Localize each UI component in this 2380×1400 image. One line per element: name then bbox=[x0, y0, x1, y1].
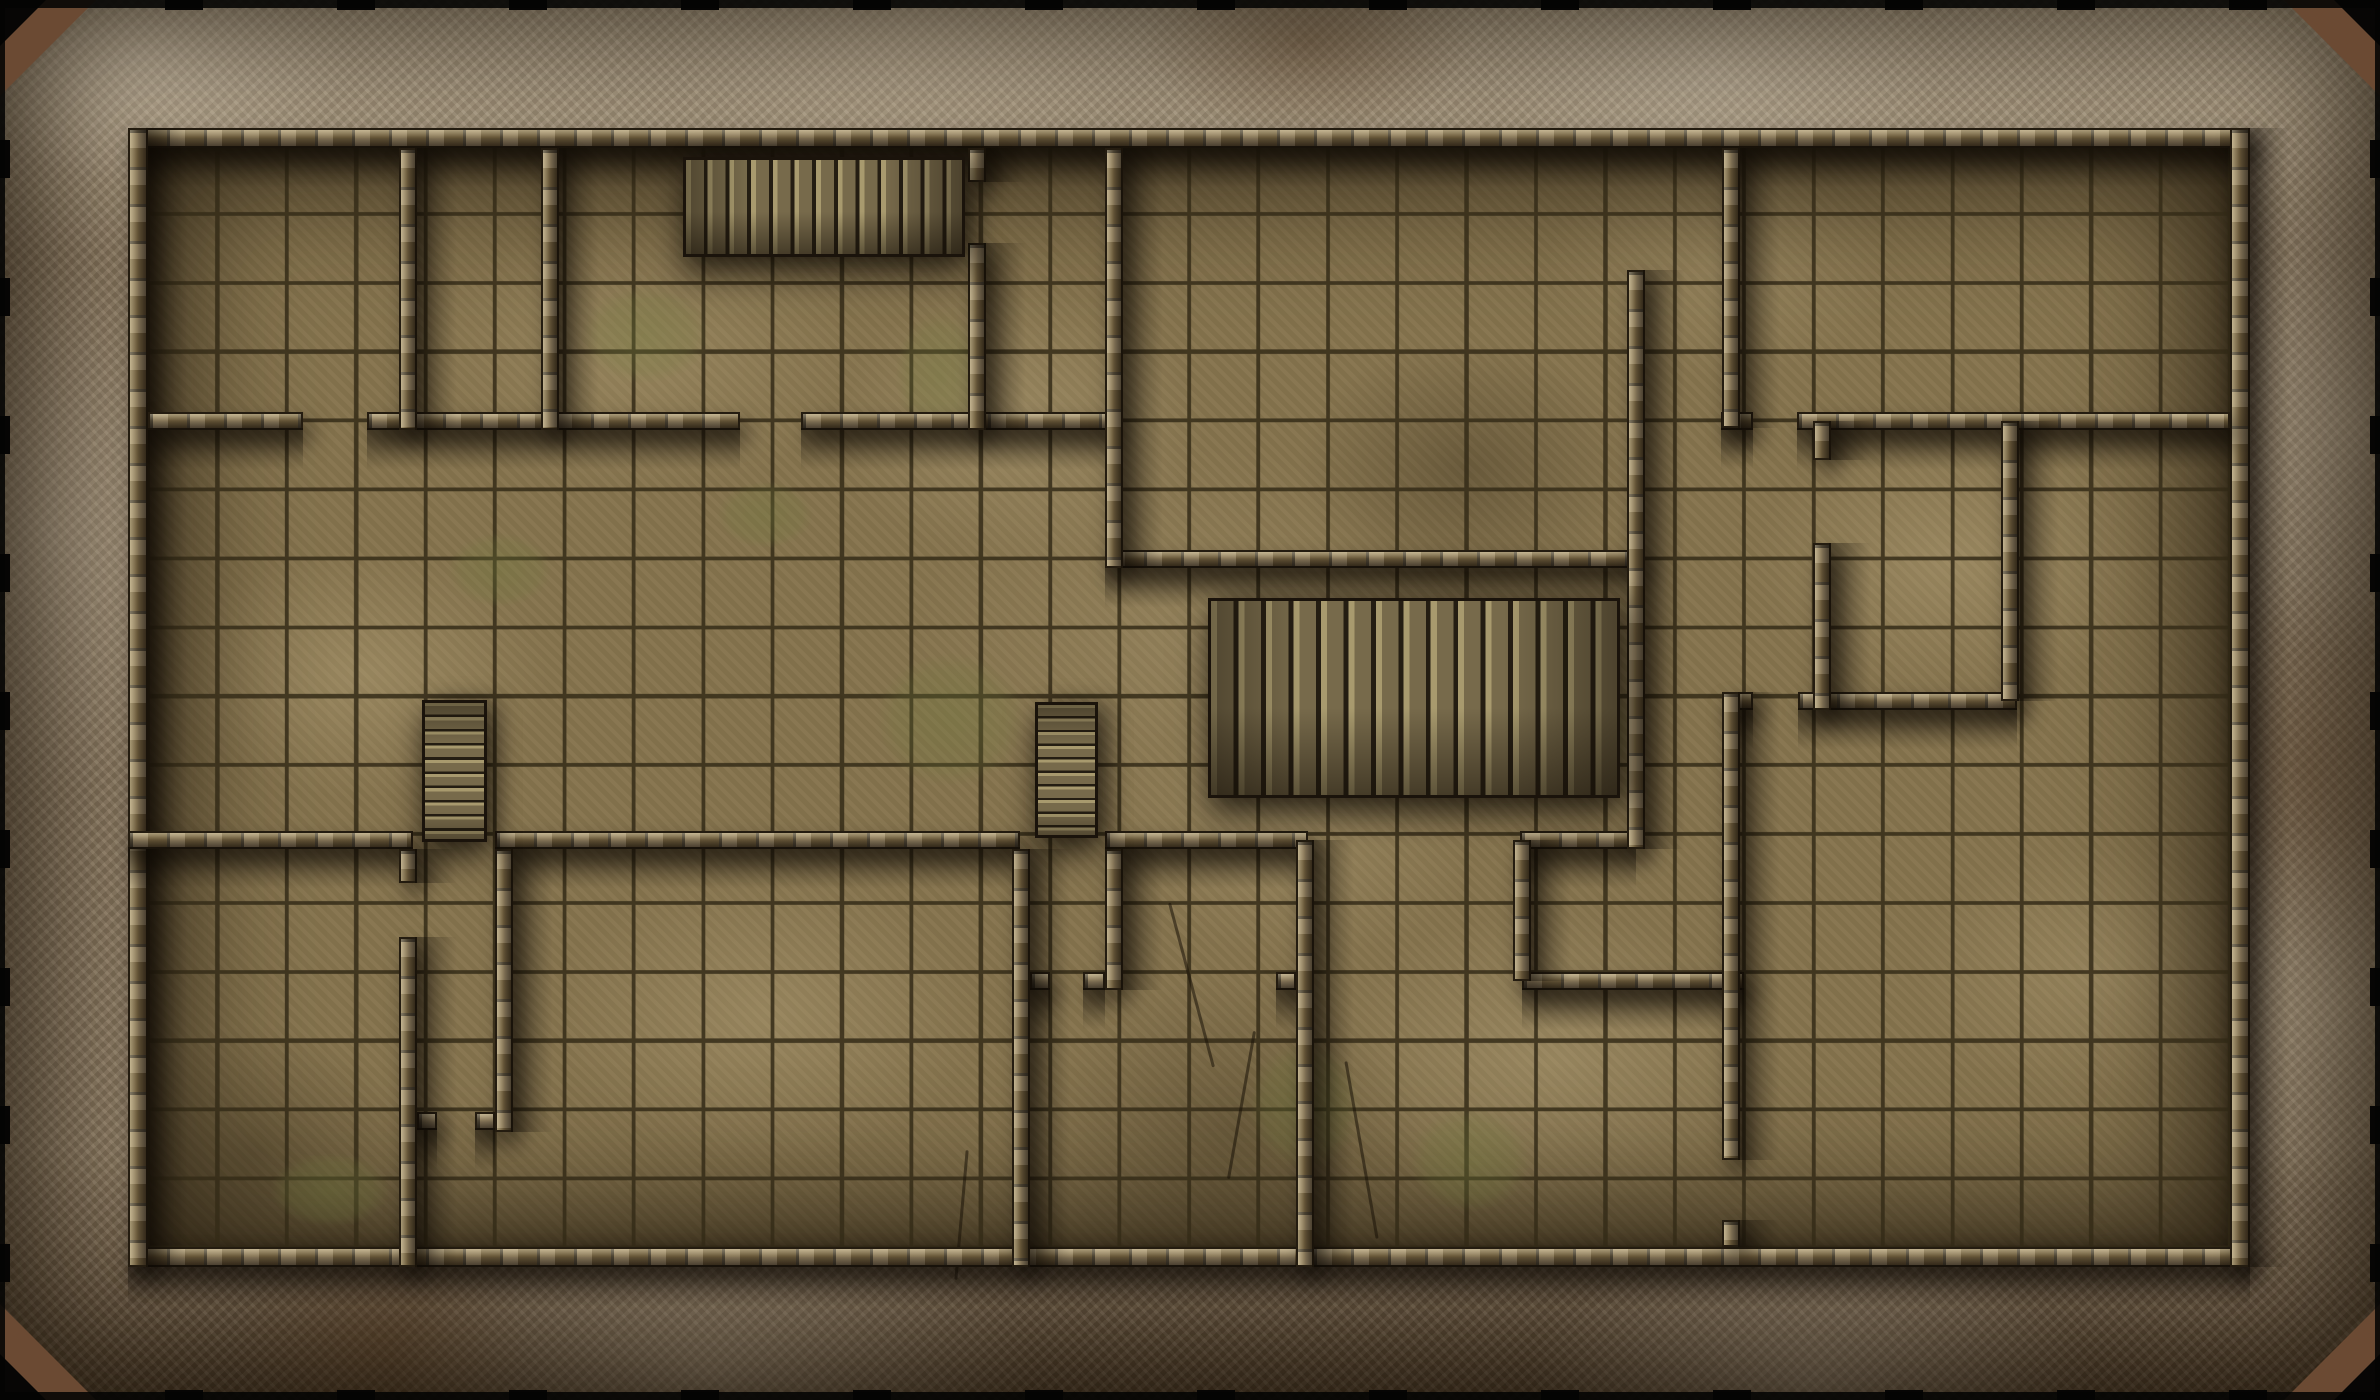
wall-segment bbox=[1722, 148, 1740, 428]
image-edge-top bbox=[0, 0, 2380, 8]
wall-segment bbox=[968, 243, 986, 430]
dungeon-map bbox=[0, 0, 2380, 1400]
outer-wall-left bbox=[128, 128, 148, 1267]
staircase bbox=[1208, 598, 1620, 798]
wall-segment bbox=[1296, 840, 1314, 1267]
staircase bbox=[1035, 702, 1098, 838]
image-edge-right bbox=[2375, 0, 2380, 1400]
wall-segment bbox=[1627, 270, 1645, 849]
staircase bbox=[683, 157, 965, 257]
wall-segment bbox=[128, 831, 413, 849]
wall-segment bbox=[495, 849, 513, 1132]
wall-segment bbox=[1105, 550, 1643, 568]
wall-segment bbox=[1012, 849, 1030, 1267]
image-edge-left bbox=[0, 0, 5, 1400]
wall-segment bbox=[1513, 840, 1531, 981]
wall-segment bbox=[2001, 421, 2019, 701]
wall-segment bbox=[1276, 972, 1296, 990]
image-edge-bottom bbox=[0, 1392, 2380, 1400]
wall-segment bbox=[801, 412, 1114, 430]
staircase bbox=[422, 700, 487, 842]
wall-segment bbox=[541, 148, 559, 430]
wall-segment bbox=[1105, 831, 1308, 849]
wall-segment bbox=[148, 412, 303, 430]
wall-segment bbox=[968, 148, 986, 182]
outer-wall-right bbox=[2230, 128, 2250, 1267]
wall-segment bbox=[1813, 421, 1831, 460]
outer-wall-top bbox=[128, 128, 2250, 148]
wall-segment bbox=[1083, 972, 1105, 990]
wall-segment bbox=[1722, 1220, 1740, 1247]
wall-segment bbox=[399, 849, 417, 883]
wall-segment bbox=[1105, 148, 1123, 568]
wall-segment bbox=[495, 831, 1020, 849]
wall-segment bbox=[1813, 543, 1831, 710]
wall-segment bbox=[475, 1112, 495, 1130]
wall-segment bbox=[1722, 692, 1740, 1160]
wall-segment bbox=[1105, 849, 1123, 990]
wall-segment bbox=[399, 148, 417, 430]
wall-segment bbox=[399, 937, 417, 1267]
